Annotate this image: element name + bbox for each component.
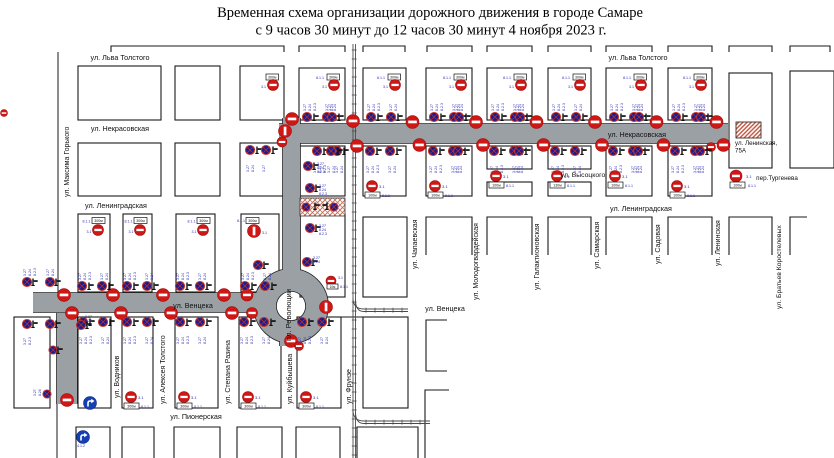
svg-text:3.27: 3.27 xyxy=(696,166,700,173)
svg-text:8.24: 8.24 xyxy=(38,389,42,396)
svg-text:8.24: 8.24 xyxy=(85,319,92,323)
svg-text:8.24: 8.24 xyxy=(203,273,207,280)
svg-text:8.24: 8.24 xyxy=(128,337,132,344)
svg-text:100м: 100м xyxy=(368,193,377,197)
svg-text:8.1.1: 8.1.1 xyxy=(125,220,133,224)
svg-text:ул. Льва Толстого: ул. Льва Толстого xyxy=(609,53,668,62)
svg-text:ул. Некрасовская: ул. Некрасовская xyxy=(608,130,666,139)
svg-text:3.27: 3.27 xyxy=(515,166,519,173)
svg-text:3.27: 3.27 xyxy=(552,104,556,111)
svg-text:3.27: 3.27 xyxy=(33,389,37,396)
svg-text:8.2.3: 8.2.3 xyxy=(250,336,254,344)
svg-text:300м: 300м xyxy=(390,75,399,79)
svg-text:3.27: 3.27 xyxy=(123,273,127,280)
svg-text:300м: 300м xyxy=(636,75,645,79)
svg-text:8.24: 8.24 xyxy=(459,166,463,173)
svg-text:3.1: 3.1 xyxy=(313,395,319,400)
svg-text:8.1.1: 8.1.1 xyxy=(443,76,451,80)
svg-text:ул. Венцека: ул. Венцека xyxy=(425,304,465,313)
svg-text:300м: 300м xyxy=(248,219,257,223)
svg-text:8.24: 8.24 xyxy=(150,273,154,280)
svg-text:100м: 100м xyxy=(431,193,440,197)
svg-text:8.2.3: 8.2.3 xyxy=(308,336,312,344)
svg-text:8.1.1: 8.1.1 xyxy=(683,76,691,80)
svg-text:8.2.3: 8.2.3 xyxy=(33,268,37,276)
svg-text:8.1.1: 8.1.1 xyxy=(623,76,631,80)
svg-text:8.24: 8.24 xyxy=(520,166,524,173)
svg-text:8.24: 8.24 xyxy=(313,260,320,264)
svg-text:8.24: 8.24 xyxy=(251,165,255,172)
svg-text:3.1: 3.1 xyxy=(746,174,752,179)
svg-text:8.24: 8.24 xyxy=(615,104,619,111)
svg-text:3.1: 3.1 xyxy=(262,231,267,235)
svg-text:3.1: 3.1 xyxy=(568,85,573,89)
svg-text:8.24: 8.24 xyxy=(521,104,525,111)
svg-text:8.1.1: 8.1.1 xyxy=(687,194,695,198)
svg-text:ул. Молодогвардейская: ул. Молодогвардейская xyxy=(472,223,480,300)
svg-text:3.27: 3.27 xyxy=(100,273,104,280)
svg-text:3.27: 3.27 xyxy=(78,273,82,280)
svg-text:300м: 300м xyxy=(575,75,584,79)
svg-text:3.27: 3.27 xyxy=(672,104,676,111)
svg-text:3.1: 3.1 xyxy=(622,174,628,179)
svg-text:3.27: 3.27 xyxy=(145,337,149,344)
svg-text:8.2.3: 8.2.3 xyxy=(133,336,137,344)
svg-text:300м: 300м xyxy=(696,75,705,79)
svg-text:3.27: 3.27 xyxy=(635,104,639,111)
svg-text:3.27: 3.27 xyxy=(298,337,302,344)
svg-text:8.1.1: 8.1.1 xyxy=(562,76,570,80)
svg-text:8.2.3: 8.2.3 xyxy=(133,272,137,280)
svg-text:8.1.1: 8.1.1 xyxy=(316,76,324,80)
svg-text:300м: 300м xyxy=(94,219,103,223)
svg-text:3.27: 3.27 xyxy=(123,337,127,344)
svg-text:3.1: 3.1 xyxy=(255,395,261,400)
svg-text:3.1: 3.1 xyxy=(87,230,92,234)
svg-text:8.24: 8.24 xyxy=(268,273,272,280)
svg-text:пер.Тургенева: пер.Тургенева xyxy=(756,175,798,182)
svg-text:8.1.1: 8.1.1 xyxy=(237,219,245,223)
svg-text:3.1: 3.1 xyxy=(629,85,634,89)
svg-text:Временная схема организации до: Временная схема организации дорожного дв… xyxy=(217,5,643,21)
svg-text:3.27: 3.27 xyxy=(176,337,180,344)
svg-text:ул. Ленинградская: ул. Ленинградская xyxy=(610,204,672,213)
svg-text:8.1.1: 8.1.1 xyxy=(194,405,202,409)
svg-text:ул. Пионерская: ул. Пионерская xyxy=(170,412,222,421)
svg-text:ул. Льва Толстого: ул. Льва Толстого xyxy=(91,53,150,62)
svg-text:8.1.1: 8.1.1 xyxy=(503,76,511,80)
svg-text:8.1.1: 8.1.1 xyxy=(567,184,575,188)
svg-text:ул. Некрасовская: ул. Некрасовская xyxy=(91,124,149,133)
svg-text:3.1: 3.1 xyxy=(192,230,197,234)
svg-text:8.24: 8.24 xyxy=(106,337,110,344)
svg-text:300м: 300м xyxy=(516,75,525,79)
svg-text:8.24: 8.24 xyxy=(128,273,132,280)
svg-text:8.24: 8.24 xyxy=(579,104,583,111)
svg-text:8.24: 8.24 xyxy=(28,269,32,276)
svg-text:3.1: 3.1 xyxy=(138,395,144,400)
svg-text:3.1: 3.1 xyxy=(338,276,343,280)
svg-text:8.24: 8.24 xyxy=(496,104,500,111)
svg-text:ул. Куйбышева: ул. Куйбышева xyxy=(285,354,294,404)
svg-text:3.27: 3.27 xyxy=(320,337,324,344)
svg-text:8.2.3: 8.2.3 xyxy=(313,103,317,111)
svg-text:3.27: 3.27 xyxy=(303,104,307,111)
svg-text:3.1: 3.1 xyxy=(261,85,266,89)
svg-text:8.2.3: 8.2.3 xyxy=(319,192,327,196)
svg-text:8.2.3: 8.2.3 xyxy=(319,232,327,236)
svg-text:8.24: 8.24 xyxy=(303,337,307,344)
svg-text:8.2.3: 8.2.3 xyxy=(500,165,504,173)
svg-text:3.27: 3.27 xyxy=(367,104,371,111)
svg-text:8.1.1: 8.1.1 xyxy=(340,285,348,289)
svg-text:100м: 100м xyxy=(611,183,620,187)
svg-text:3.27: 3.27 xyxy=(262,337,266,344)
svg-text:8.1.1: 8.1.1 xyxy=(445,194,453,198)
svg-text:8.2.3: 8.2.3 xyxy=(377,103,381,111)
svg-text:3.27: 3.27 xyxy=(430,104,434,111)
svg-text:ул. Ленинградская: ул. Ленинградская xyxy=(85,201,147,210)
svg-text:8.1.1: 8.1.1 xyxy=(625,184,633,188)
svg-text:3.27: 3.27 xyxy=(198,337,202,344)
svg-text:8.24: 8.24 xyxy=(203,337,207,344)
svg-text:300м: 300м xyxy=(199,219,208,223)
svg-text:300м: 300м xyxy=(180,404,189,408)
svg-text:3.27: 3.27 xyxy=(634,166,638,173)
svg-text:3.27: 3.27 xyxy=(240,337,244,344)
svg-text:8.24: 8.24 xyxy=(677,104,681,111)
svg-text:ул. Максима Горького: ул. Максима Горького xyxy=(64,126,71,197)
svg-text:8.24: 8.24 xyxy=(245,337,249,344)
svg-text:3.27: 3.27 xyxy=(574,104,578,111)
svg-text:130м: 130м xyxy=(553,183,562,187)
svg-text:3.27: 3.27 xyxy=(671,166,675,173)
svg-text:4.1.2: 4.1.2 xyxy=(77,444,85,448)
svg-text:8.2.3: 8.2.3 xyxy=(439,165,443,173)
svg-text:3.27: 3.27 xyxy=(454,166,458,173)
svg-text:8.24: 8.24 xyxy=(308,104,312,111)
svg-text:ул. Степана Разина: ул. Степана Разина xyxy=(225,340,232,404)
svg-text:8.2.3: 8.2.3 xyxy=(440,103,444,111)
svg-text:8.2.3: 8.2.3 xyxy=(619,165,623,173)
svg-text:3.27: 3.27 xyxy=(429,166,433,173)
svg-text:8.2.3: 8.2.3 xyxy=(88,272,92,280)
svg-text:8.24: 8.24 xyxy=(181,273,185,280)
svg-text:3.27: 3.27 xyxy=(366,166,370,173)
svg-text:3.27: 3.27 xyxy=(46,269,50,276)
svg-text:3.27: 3.27 xyxy=(455,104,459,111)
svg-text:8.2.3: 8.2.3 xyxy=(186,336,190,344)
svg-text:ул. Ленинская,: ул. Ленинская, xyxy=(735,140,778,147)
svg-text:300м: 300м xyxy=(127,404,136,408)
svg-text:8.24: 8.24 xyxy=(267,337,271,344)
svg-text:300м: 300м xyxy=(268,75,277,79)
svg-text:3.1: 3.1 xyxy=(503,174,509,179)
svg-text:ул. Галактионовская: ул. Галактионовская xyxy=(534,223,541,290)
svg-text:ул. Водников: ул. Водников xyxy=(114,355,121,398)
svg-text:3.27: 3.27 xyxy=(246,165,250,172)
svg-text:8.1.1: 8.1.1 xyxy=(83,220,91,224)
svg-text:3.1: 3.1 xyxy=(129,230,134,234)
svg-text:ул. Самарская: ул. Самарская xyxy=(594,221,601,269)
svg-text:3.27: 3.27 xyxy=(145,273,149,280)
svg-text:100м: 100м xyxy=(673,193,682,197)
svg-text:8.2.3: 8.2.3 xyxy=(251,272,255,280)
svg-text:8.24: 8.24 xyxy=(150,337,154,344)
svg-text:8.2.3: 8.2.3 xyxy=(186,272,190,280)
svg-text:300м: 300м xyxy=(302,404,311,408)
svg-text:3.1: 3.1 xyxy=(322,85,327,89)
svg-text:8.24: 8.24 xyxy=(394,104,398,111)
svg-text:пл. Революции: пл. Революции xyxy=(284,289,293,341)
svg-text:3.1: 3.1 xyxy=(383,85,388,89)
svg-text:ул. Высоцкого: ул. Высоцкого xyxy=(561,172,606,179)
svg-text:8.24: 8.24 xyxy=(105,273,109,280)
svg-text:3.27: 3.27 xyxy=(610,104,614,111)
svg-text:8.2.3: 8.2.3 xyxy=(681,165,685,173)
svg-text:8.24: 8.24 xyxy=(676,166,680,173)
svg-text:8.24: 8.24 xyxy=(340,166,344,173)
svg-text:3.27: 3.27 xyxy=(262,165,266,172)
svg-text:ул. Чапаевская: ул. Чапаевская xyxy=(412,219,419,269)
svg-text:8.1.1: 8.1.1 xyxy=(141,405,149,409)
svg-text:8.2.3: 8.2.3 xyxy=(682,103,686,111)
svg-text:с 9 часов 30 минут до 12 часов: с 9 часов 30 минут до 12 часов 30 минут … xyxy=(256,23,607,39)
svg-text:3.27: 3.27 xyxy=(389,104,393,111)
svg-text:8.2.3: 8.2.3 xyxy=(28,337,32,345)
svg-text:3.1: 3.1 xyxy=(509,85,514,89)
svg-text:8.24: 8.24 xyxy=(460,104,464,111)
svg-text:8.24: 8.24 xyxy=(435,104,439,111)
svg-text:ул. Фрунзе: ул. Фрунзе xyxy=(346,369,353,404)
svg-text:3.27: 3.27 xyxy=(388,166,392,173)
svg-text:3.27: 3.27 xyxy=(23,338,27,345)
svg-text:8.2.3: 8.2.3 xyxy=(317,170,325,174)
svg-text:3.27: 3.27 xyxy=(79,337,83,344)
svg-text:3.27: 3.27 xyxy=(328,104,332,111)
svg-text:3.1: 3.1 xyxy=(689,85,694,89)
svg-text:8.24: 8.24 xyxy=(393,166,397,173)
svg-text:3.27: 3.27 xyxy=(198,273,202,280)
svg-text:8.1.1: 8.1.1 xyxy=(188,220,196,224)
svg-text:8.2.3: 8.2.3 xyxy=(89,336,93,344)
svg-text:100м: 100м xyxy=(733,183,742,187)
svg-text:ул. Садовая: ул. Садовая xyxy=(655,224,662,264)
svg-text:8.24: 8.24 xyxy=(372,104,376,111)
svg-text:8.2.3: 8.2.3 xyxy=(501,103,505,111)
svg-text:8.24: 8.24 xyxy=(640,104,644,111)
svg-text:3.27: 3.27 xyxy=(23,269,27,276)
svg-text:ул. Братьев Коростелевых: ул. Братьев Коростелевых xyxy=(776,225,783,309)
svg-text:3.27: 3.27 xyxy=(516,104,520,111)
svg-text:8.24: 8.24 xyxy=(332,166,336,173)
svg-text:8.24: 8.24 xyxy=(181,337,185,344)
svg-text:8.1.1: 8.1.1 xyxy=(748,184,756,188)
svg-text:ул. Ленинская: ул. Ленинская xyxy=(715,220,722,266)
svg-text:8.1.1: 8.1.1 xyxy=(316,405,324,409)
svg-text:8.1.1: 8.1.1 xyxy=(506,184,514,188)
svg-text:100м: 100м xyxy=(492,183,501,187)
svg-text:300м: 300м xyxy=(244,404,253,408)
svg-text:3.1: 3.1 xyxy=(191,395,197,400)
svg-text:8.2.3: 8.2.3 xyxy=(620,103,624,111)
svg-text:300м: 300м xyxy=(456,75,465,79)
svg-text:8.24: 8.24 xyxy=(701,166,705,173)
svg-text:300м: 300м xyxy=(329,75,338,79)
svg-text:8.24: 8.24 xyxy=(557,104,561,111)
svg-text:8.24: 8.24 xyxy=(639,166,643,173)
svg-text:10м: 10м xyxy=(330,285,336,289)
svg-text:3.27: 3.27 xyxy=(263,273,267,280)
svg-text:3.27: 3.27 xyxy=(241,273,245,280)
svg-text:3.27: 3.27 xyxy=(176,273,180,280)
svg-text:3.1: 3.1 xyxy=(684,184,690,189)
svg-text:8.24: 8.24 xyxy=(84,337,88,344)
svg-text:8.2.3: 8.2.3 xyxy=(562,103,566,111)
svg-text:8.24: 8.24 xyxy=(51,269,55,276)
svg-text:3.1: 3.1 xyxy=(442,184,448,189)
svg-text:8.24: 8.24 xyxy=(325,337,329,344)
svg-text:8.24: 8.24 xyxy=(371,166,375,173)
svg-text:3.1: 3.1 xyxy=(449,85,454,89)
svg-text:75А: 75А xyxy=(735,148,747,155)
svg-text:8.24: 8.24 xyxy=(434,166,438,173)
svg-text:8.24: 8.24 xyxy=(246,273,250,280)
svg-text:8.1.1: 8.1.1 xyxy=(377,76,385,80)
svg-text:ул. Алексея Толстого: ул. Алексея Толстого xyxy=(160,335,167,404)
svg-text:8.2.3: 8.2.3 xyxy=(376,165,380,173)
svg-text:8.1.1: 8.1.1 xyxy=(258,405,266,409)
svg-text:8.1.1: 8.1.1 xyxy=(382,194,390,198)
svg-text:3.27: 3.27 xyxy=(101,337,105,344)
svg-text:3.27: 3.27 xyxy=(697,104,701,111)
svg-text:3.27: 3.27 xyxy=(491,104,495,111)
svg-text:300м: 300м xyxy=(136,219,145,223)
svg-text:8.24: 8.24 xyxy=(702,104,706,111)
svg-text:3.27: 3.27 xyxy=(327,166,331,173)
svg-text:8.24: 8.24 xyxy=(83,273,87,280)
svg-text:ул. Венцека: ул. Венцека xyxy=(173,301,213,310)
svg-text:8.24: 8.24 xyxy=(333,104,337,111)
svg-text:3.1: 3.1 xyxy=(379,184,385,189)
